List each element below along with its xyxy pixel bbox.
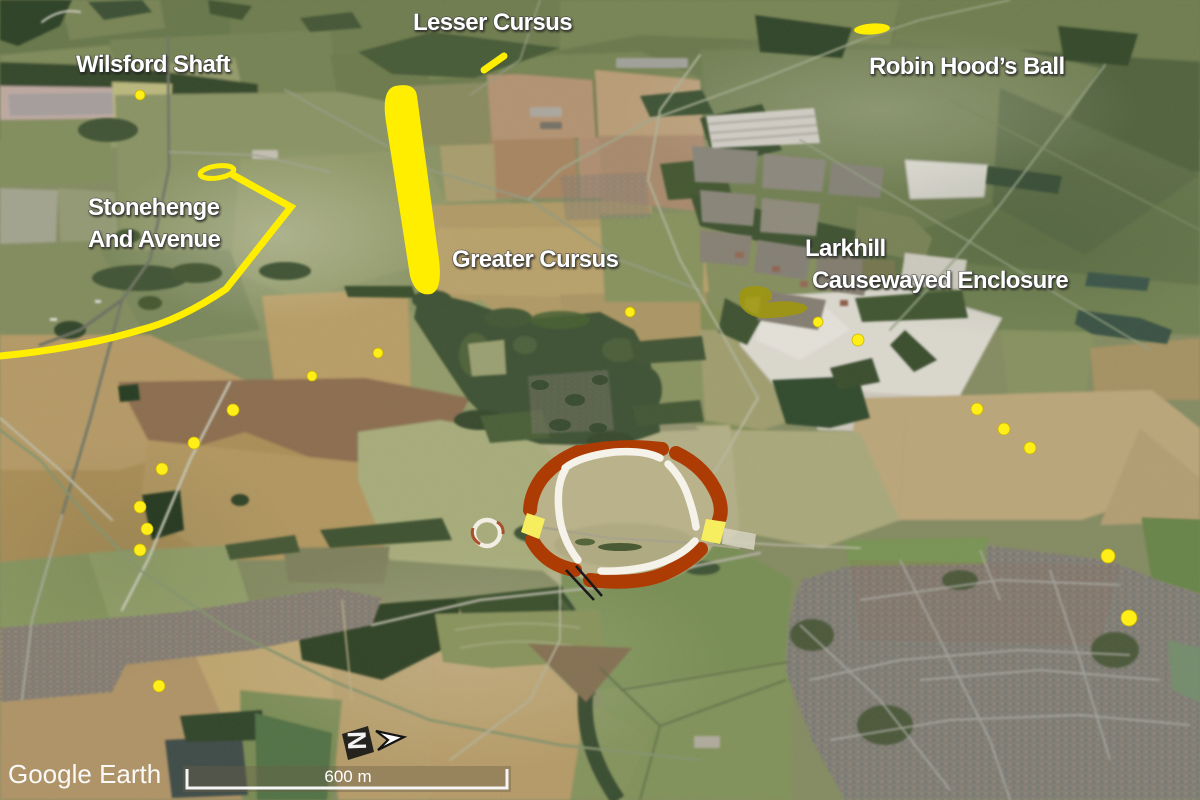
svg-text:Robin Hood’s Ball: Robin Hood’s Ball <box>869 53 1065 80</box>
svg-text:600 m: 600 m <box>324 767 371 786</box>
svg-text:Lesser Cursus: Lesser Cursus <box>413 9 572 36</box>
svg-text:Wilsford Shaft: Wilsford Shaft <box>76 51 231 78</box>
svg-text:And Avenue: And Avenue <box>88 226 220 253</box>
svg-text:Google Earth: Google Earth <box>8 759 161 789</box>
svg-text:N: N <box>342 731 373 751</box>
svg-text:Larkhill: Larkhill <box>805 235 886 262</box>
svg-text:Greater Cursus: Greater Cursus <box>452 246 619 273</box>
svg-text:Stonehenge: Stonehenge <box>88 194 220 221</box>
svg-text:Causewayed Enclosure: Causewayed Enclosure <box>812 267 1068 294</box>
